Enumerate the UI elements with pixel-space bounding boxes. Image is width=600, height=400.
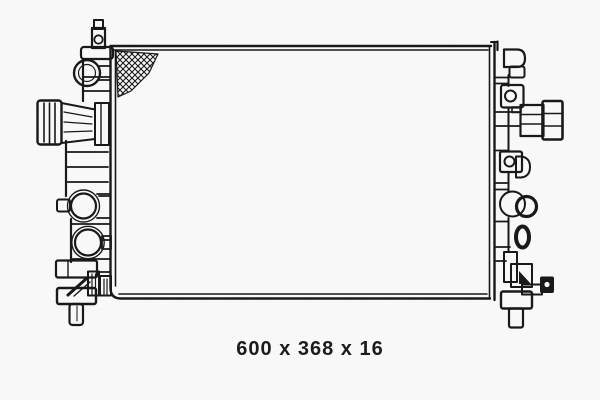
dimension-label: 600 x 368 x 16	[236, 338, 383, 361]
product-image: 600 x 368 x 16	[0, 0, 600, 400]
